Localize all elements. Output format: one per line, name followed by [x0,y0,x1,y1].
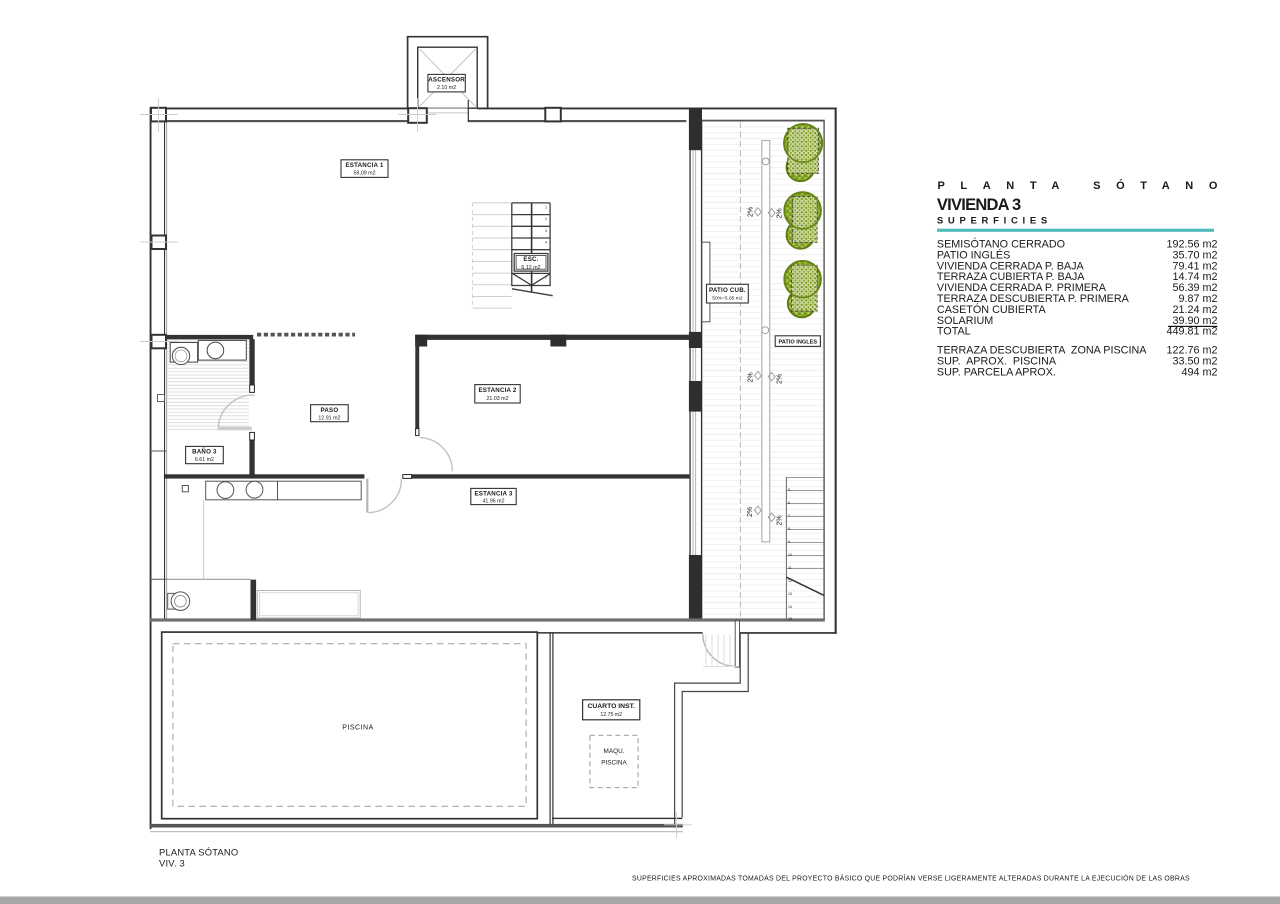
svg-text:2.10 m2: 2.10 m2 [437,85,456,91]
svg-text:2%: 2% [777,208,784,218]
svg-text:5: 5 [788,488,790,492]
svg-text:7: 7 [545,276,547,280]
svg-text:PISCINA: PISCINA [601,760,627,767]
svg-text:2%: 2% [748,372,755,382]
svg-text:21.03 m2: 21.03 m2 [486,396,508,402]
svg-text:TOTAL: TOTAL [937,326,971,338]
svg-text:SUPERFICIES: SUPERFICIES [937,216,1052,227]
svg-text:2%: 2% [777,374,784,384]
svg-text:1: 1 [545,206,547,210]
svg-text:7: 7 [788,514,790,518]
svg-text:8: 8 [788,527,790,531]
svg-text:SUP. PARCELA APROX.: SUP. PARCELA APROX. [937,367,1056,379]
svg-text:CUARTO INST.: CUARTO INST. [587,703,635,710]
svg-text:9: 9 [788,540,790,544]
svg-text:ESTANCIA 2: ESTANCIA 2 [478,387,516,394]
svg-text:3: 3 [545,229,547,233]
svg-text:2%: 2% [747,507,754,517]
svg-text:10: 10 [788,553,792,557]
svg-text:6.61 m2: 6.61 m2 [195,457,214,463]
svg-text:PISCINA: PISCINA [342,725,374,732]
svg-text:2: 2 [545,217,547,221]
svg-text:14: 14 [788,605,792,609]
svg-text:ASCENSOR: ASCENSOR [428,77,465,84]
svg-text:449.81 m2: 449.81 m2 [1166,326,1217,338]
svg-text:PLANTA SÓTANO: PLANTA SÓTANO [938,179,1233,192]
svg-text:SUPERFICIES APROXIMADAS TOMADA: SUPERFICIES APROXIMADAS TOMADAS DEL PROY… [632,874,1190,883]
svg-text:PASO: PASO [320,407,338,414]
svg-text:BAÑO 3: BAÑO 3 [192,449,217,456]
svg-text:2%: 2% [748,207,755,217]
svg-text:13: 13 [788,592,792,596]
svg-text:12.91 m2: 12.91 m2 [318,415,340,421]
svg-text:6.12 m2: 6.12 m2 [521,265,540,271]
svg-text:PATIO CUB.: PATIO CUB. [709,287,746,294]
svg-text:50%=5.65 m2: 50%=5.65 m2 [712,295,743,301]
svg-text:PATIO INGLES: PATIO INGLES [778,339,817,345]
svg-text:VIV. 3: VIV. 3 [159,858,185,869]
svg-text:12.75 m2: 12.75 m2 [600,712,622,718]
svg-text:12: 12 [788,579,792,583]
svg-text:4: 4 [545,241,547,245]
svg-text:15: 15 [788,617,792,621]
svg-text:59,09 m2: 59,09 m2 [353,171,375,177]
svg-text:ESTANCIA 3: ESTANCIA 3 [474,490,512,497]
svg-text:VIVIENDA 3: VIVIENDA 3 [937,196,1021,214]
svg-text:PLANTA SÓTANO: PLANTA SÓTANO [159,847,238,858]
svg-text:494 m2: 494 m2 [1181,367,1217,379]
svg-text:2%: 2% [777,515,784,525]
svg-text:6: 6 [788,501,790,505]
svg-text:MAQU.: MAQU. [604,748,625,755]
svg-text:41.96 m2: 41.96 m2 [482,499,504,505]
svg-text:ESC.: ESC. [523,256,538,263]
svg-text:11: 11 [788,566,792,570]
svg-text:ESTANCIA 1: ESTANCIA 1 [345,162,383,169]
